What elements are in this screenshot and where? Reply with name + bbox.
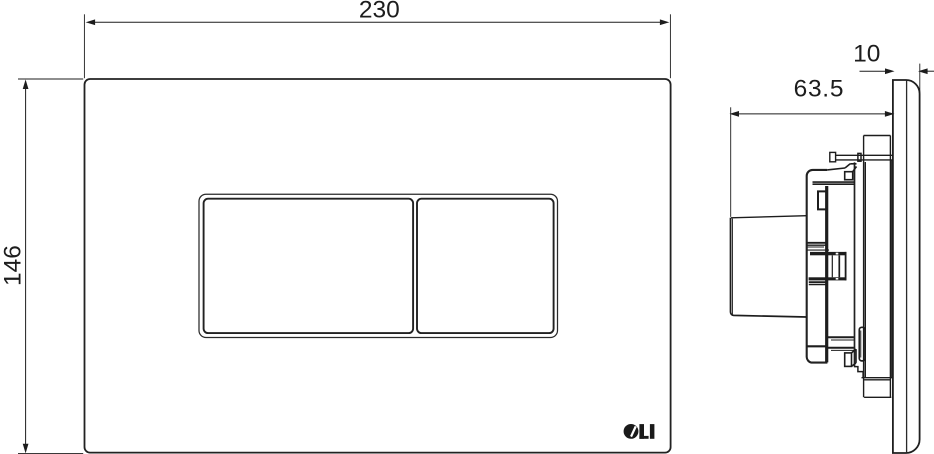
svg-text:146: 146	[0, 245, 27, 286]
svg-text:10: 10	[853, 41, 880, 68]
svg-text:230: 230	[359, 0, 400, 24]
svg-text:63.5: 63.5	[794, 75, 844, 102]
